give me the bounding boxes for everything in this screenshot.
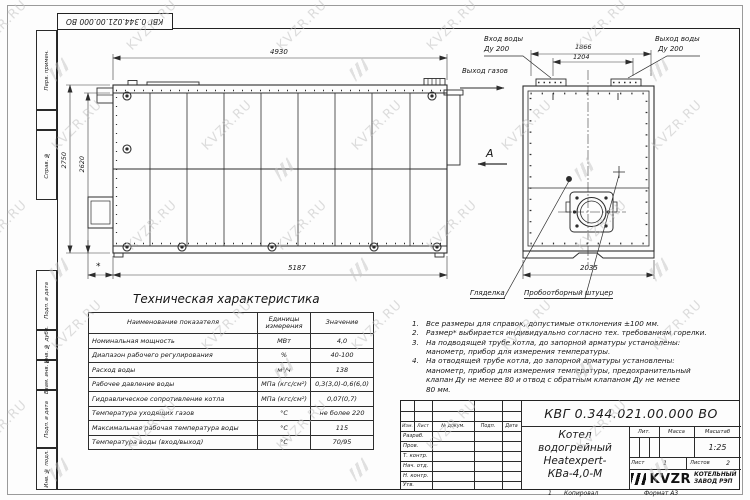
gas-outlet-label: Выход газов [462,67,508,75]
spec-header-value: Значение [311,313,374,334]
spec-header-name: Наименование показателя [89,313,258,334]
tb-col-podp: Подп. [474,421,502,431]
sight-glass-mark [567,177,572,182]
tb-product-name: Котел водогрейный Heatexpert-КВа-4,0-М [521,429,629,482]
company-name: КОТЕЛЬНЫЙ ЗАВОД РЭП [694,472,737,485]
fold-mark: 1 [548,490,552,497]
note-number: 3. [412,338,426,357]
note-text: Размер* выбирается индивидуально согласн… [426,328,707,337]
note-text: На отводящей трубе котла, до запорной ар… [426,356,691,393]
tb-row-nachotd: Нач. отд. [401,461,434,471]
table-row: Расход воды м³/ч 138 [89,363,374,378]
tb-row-utv: Утв. [401,481,434,489]
rear-view [523,70,654,266]
spec-cell: 40-100 [311,348,374,363]
dim-asterisk: * [96,262,101,272]
list-item: 2. Размер* выбирается индивидуально согл… [412,328,748,337]
table-row: Номинальная мощность МВт 4,0 [89,334,374,349]
list-item: 4. На отводящей трубе котла, до запорной… [412,356,748,393]
spec-cell: МПа (кгс/см²) [258,392,311,407]
spec-cell: 138 [311,363,374,378]
dim-flanges-inner: 1204 [573,53,590,61]
spec-cell: Рабочее давление воды [89,377,258,392]
tb-col-docnum: № докум. [432,421,474,431]
tb-row-nkontr: Н. контр. [401,471,434,481]
notes-list: 1. Все размеры для справок, допустимые о… [412,319,748,394]
dim-height-inner: 2620 [78,156,86,173]
sampling-fitting-label: Пробоотборный штуцер [524,289,613,299]
copied-label: Копировал [564,490,598,497]
water-inlet-label: Вход воды [484,35,523,43]
water-outlet-dn: Ду 200 [658,45,683,53]
title-block: Изм. Лист № докум. Подп. Дата Разраб. Пр… [400,400,740,490]
bolt-circles [123,92,441,251]
spec-cell: Температура уходящих газов [89,406,258,421]
tb-sheets-value: 2 [718,457,738,469]
tb-sheets-label: Листов [688,457,720,469]
dim-top-width: 4930 [270,48,288,56]
spec-cell: Гидравлическое сопротивление котла [89,392,258,407]
dim-rear-width: 2035 [580,264,598,272]
spec-table-title: Техническая характеристика [133,292,320,306]
spec-cell: °С [258,406,311,421]
tb-mass-label: Масса [659,426,694,437]
table-row: Рабочее давление воды МПа (кгс/см²) 0,3(… [89,377,374,392]
spec-cell: °С [258,421,311,436]
view-arrow-label: А [486,147,494,160]
tb-sheet-label: Лист [629,457,657,469]
table-row: Температура воды (вход/выход) °С 70/95 [89,435,374,450]
spec-cell: не более 220 [311,406,374,421]
tb-col-list: Лист [414,421,432,431]
spec-cell: % [258,348,311,363]
tb-row-prov: Пров. [401,441,434,451]
tb-scale-value: 1:25 [694,437,741,457]
kvzr-logo-icon [631,473,646,485]
company-logo: KVZR КОТЕЛЬНЫЙ ЗАВОД РЭП [629,469,739,489]
table-row: Температура уходящих газов °С не более 2… [89,406,374,421]
spec-cell: Номинальная мощность [89,334,258,349]
list-item: 1. Все размеры для справок, допустимые о… [412,319,748,328]
tb-doc-number: КВГ 0.344.021.00.000 ВО [521,401,741,426]
table-row: Гидравлическое сопротивление котла МПа (… [89,392,374,407]
spec-cell: °С [258,435,311,450]
note-number: 4. [412,356,426,393]
company-line1: КОТЕЛЬНЫЙ [694,472,737,479]
spec-cell: 0,07(0,7) [311,392,374,407]
kvzr-logo-text: KVZR [649,472,691,487]
tb-lit-label: Лит. [629,426,659,437]
spec-cell: 70/95 [311,435,374,450]
spec-cell: МПа (кгс/см²) [258,377,311,392]
note-number: 2. [412,328,426,337]
drawing-sheet: КВГ 0.344.021.00.000 ВО Перв. примен. Сп… [0,0,750,500]
tb-col-izm: Изм. [401,421,414,431]
table-row: Диапазон рабочего регулирования % 40-100 [89,348,374,363]
company-line2: ЗАВОД РЭП [694,479,737,486]
list-item: 3. На подводящей трубе котла, до запорно… [412,338,748,357]
leader-lines [460,56,700,298]
spec-cell: 115 [311,421,374,436]
spec-cell: м³/ч [258,363,311,378]
spec-cell: 0,3(3,0)-0,6(6,0) [311,377,374,392]
dim-flanges-outer: 1866 [575,43,592,51]
format-label: Формат А3 [644,490,678,497]
dim-height-outer: 2750 [60,152,68,169]
spec-cell: 4,0 [311,334,374,349]
tb-row-tkontr: Т. контр. [401,451,434,461]
side-view [88,79,463,258]
table-row: Максимальная рабочая температура воды °С… [89,421,374,436]
spec-cell: Максимальная рабочая температура воды [89,421,258,436]
note-number: 1. [412,319,426,328]
spec-cell: Диапазон рабочего регулирования [89,348,258,363]
tb-scale-label: Масштаб [694,426,741,437]
spec-cell: Расход воды [89,363,258,378]
spec-table: Наименование показателя Единицы измерени… [88,312,374,450]
product-name-line2: Heatexpert-КВа-4,0-М [521,455,629,481]
note-text: Все размеры для справок, допустимые откл… [426,319,659,328]
dim-bottom-width: 5187 [288,264,306,272]
water-inlet-dn: Ду 200 [484,45,509,53]
tb-sheet-value: 1 [655,457,675,469]
spec-header-units: Единицы измерения [258,313,311,334]
sight-glass-label: Гляделка [470,289,505,299]
spec-cell: МВт [258,334,311,349]
product-name-line1: Котел водогрейный [521,429,629,455]
note-text: На подводящей трубе котла, до запорной а… [426,338,680,357]
tb-col-data: Дата [502,421,521,431]
tb-row-razrab: Разраб. [401,431,434,441]
water-outlet-label: Выход воды [655,35,700,43]
spec-cell: Температура воды (вход/выход) [89,435,258,450]
